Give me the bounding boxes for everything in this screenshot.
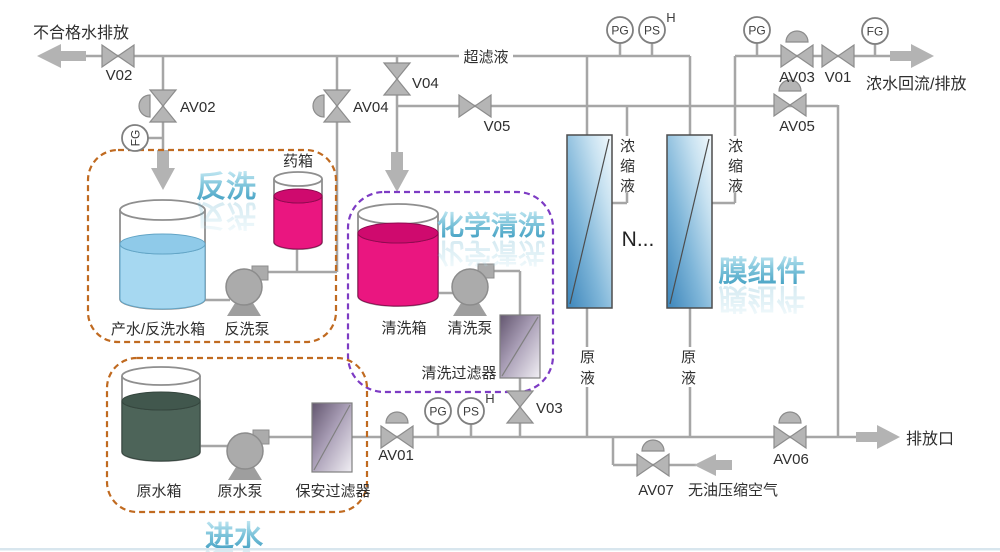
fg-label: FG [867, 25, 884, 39]
backwash-pump-label: 反洗泵 [224, 321, 269, 338]
raw-water-tank-label: 原水箱 [136, 483, 181, 500]
dosing-tank-label: 药箱 [283, 153, 313, 170]
pg-label: PG [611, 24, 628, 38]
raw-feed-char: 液 [681, 370, 696, 387]
concentrate-char: 液 [728, 178, 743, 195]
valve-av01 [381, 412, 413, 448]
tank-backwash-water [120, 200, 205, 309]
region-title-backwash: 反洗 反洗 [196, 171, 256, 231]
more-modules-label: N... [622, 228, 655, 251]
security-filter-label: 保安过滤器 [295, 483, 370, 500]
raw-water-pump-label: 原水泵 [217, 483, 262, 500]
arrow-offspec-out [37, 44, 86, 68]
valve-label-v04: V04 [412, 75, 439, 92]
bottom-edge-strip [0, 548, 1000, 551]
svg-text:反洗: 反洗 [196, 198, 256, 231]
valve-label-av06: AV06 [773, 451, 809, 468]
raw-feed-char: 原 [580, 349, 595, 366]
arrow-concentrate-out [890, 44, 934, 68]
oil-free-air-label: 无油压缩空气 [688, 482, 778, 499]
valve-label-v02: V02 [106, 67, 133, 84]
membrane-module-2 [667, 135, 712, 308]
process-flow-diagram: FG PG PS H PG FG PG PS H 超滤液 浓 缩 液 浓 缩 液… [0, 0, 1000, 552]
diagram-canvas: FG PG PS H PG FG PG PS H 超滤液 浓 缩 液 浓 缩 液… [0, 0, 1000, 552]
filter-cleaning [500, 315, 540, 378]
valve-label-av03: AV03 [779, 69, 815, 86]
tank-cleaning [358, 204, 438, 306]
pump-backwash [226, 266, 268, 316]
svg-text:膜组件: 膜组件 [718, 282, 805, 316]
valve-v02 [102, 45, 134, 67]
instrument-pg-feed: PG [425, 398, 451, 424]
valve-v01 [822, 45, 854, 67]
svg-text:化学清洗: 化学清洗 [437, 237, 545, 268]
region-title-feed: 进水 进水 [205, 520, 264, 552]
concentrate-char: 液 [620, 178, 635, 195]
pg-label: PG [429, 405, 446, 419]
instrument-fg-backwash: FG [122, 125, 148, 151]
concentrate-char: 缩 [728, 158, 743, 175]
instrument-ps-feed: PS H [458, 391, 495, 424]
pipe-bottom-main [267, 424, 858, 465]
valve-label-av02: AV02 [180, 99, 216, 116]
valve-label-av01: AV01 [378, 447, 414, 464]
cleaning-tank-label: 清洗箱 [381, 320, 426, 337]
valve-v05 [459, 95, 491, 117]
concentrate-return-label: 浓水回流/排放 [866, 75, 966, 93]
valve-label-av07: AV07 [638, 482, 674, 499]
ps-high-flag: H [666, 10, 675, 25]
valve-av07 [637, 440, 669, 476]
arrow-drain-out [856, 425, 900, 449]
ps-label: PS [463, 405, 479, 419]
valve-label-v03: V03 [536, 400, 563, 417]
region-title-membranes: 膜组件 膜组件 [718, 254, 805, 316]
ps-label: PS [644, 24, 660, 38]
raw-feed-char: 液 [580, 370, 595, 387]
pipe-backwash-circuit [205, 246, 337, 300]
filter-security [312, 403, 352, 472]
svg-text:化学清洗: 化学清洗 [437, 210, 545, 241]
pg-label: PG [748, 24, 765, 38]
cleaning-pump-label: 清洗泵 [447, 320, 492, 337]
fg-label: FG [129, 130, 143, 147]
cleaning-filter-label: 清洗过滤器 [421, 365, 496, 382]
concentrate-char: 浓 [620, 138, 635, 155]
valve-av02 [139, 90, 176, 122]
pump-raw-water [227, 430, 269, 480]
valve-label-av05: AV05 [779, 118, 815, 135]
raw-feed-char: 原 [681, 349, 696, 366]
pump-cleaning [452, 264, 494, 316]
valve-av06 [774, 412, 806, 448]
valve-v03 [507, 391, 533, 423]
valve-label-av04: AV04 [353, 99, 389, 116]
arrow-air-in [694, 454, 732, 476]
valve-label-v05: V05 [484, 118, 511, 135]
valve-label-v01: V01 [825, 69, 852, 86]
pipe-membrane-feed [587, 308, 690, 437]
offspec-flow-label: 不合格水排放 [33, 24, 129, 42]
valve-av04 [313, 90, 350, 122]
membrane-module-1 [567, 135, 612, 308]
instrument-pg-permeate: PG [607, 17, 633, 43]
instrument-ps-permeate: PS H [639, 10, 676, 43]
tank-dosing [274, 172, 322, 249]
permeate-label: 超滤液 [463, 49, 508, 66]
backwash-tank-label: 产水/反洗水箱 [111, 321, 205, 338]
concentrate-char: 浓 [728, 138, 743, 155]
arrow-into-backwash-tank [151, 150, 175, 190]
valve-av03 [781, 31, 813, 67]
tank-raw-water [122, 367, 200, 461]
concentrate-char: 缩 [620, 158, 635, 175]
drain-outlet-label: 排放口 [906, 430, 954, 448]
instrument-fg-concentrate: FG [862, 18, 888, 44]
arrow-into-cleaning-tank [385, 152, 409, 192]
region-title-chemical-cleaning: 化学清洗 化学清洗 [437, 210, 545, 268]
valve-v04 [384, 63, 410, 95]
instrument-pg-concentrate: PG [744, 17, 770, 43]
ps-high-flag: H [485, 391, 494, 406]
